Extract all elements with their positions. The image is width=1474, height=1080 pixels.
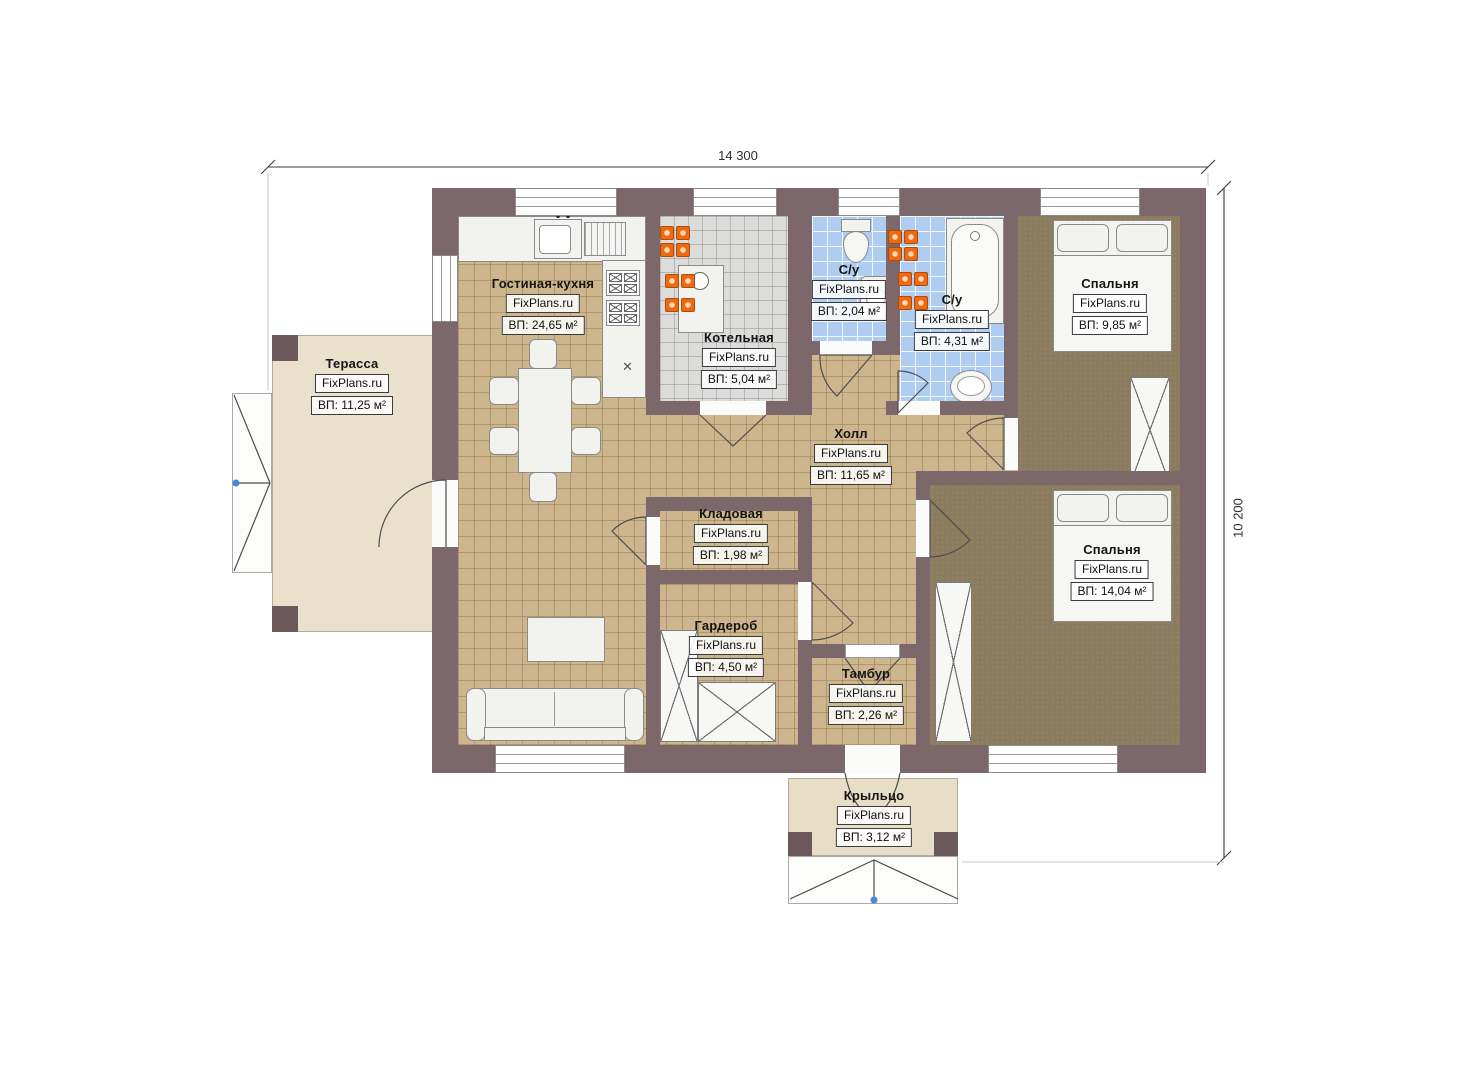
coffee-table	[527, 617, 605, 662]
dimension-height: 10 200	[1231, 498, 1246, 538]
pillow	[1057, 494, 1109, 522]
terrace-post	[272, 335, 298, 361]
room-area: ВП: 11,65 м²	[810, 466, 892, 485]
room-area: ВП: 4,50 м²	[688, 658, 764, 677]
room-label-terrace: Терасса FixPlans.ru ВП: 11,25 м²	[311, 356, 393, 415]
porch-post	[788, 832, 812, 856]
dimension-width: 14 300	[718, 148, 758, 163]
sofa-armrest	[624, 688, 644, 741]
watermark: FixPlans.ru	[315, 374, 389, 393]
radiator-icon	[660, 243, 690, 257]
door-opening	[432, 480, 458, 547]
sofa-back	[484, 727, 626, 741]
wardrobe-cabinet	[1130, 377, 1170, 483]
watermark: FixPlans.ru	[702, 348, 776, 367]
room-area: ВП: 4,31 м²	[914, 332, 990, 351]
room-label-bedroom-2: Спальня FixPlans.ru ВП: 14,04 м²	[1071, 542, 1154, 601]
chair	[529, 472, 557, 502]
room-name: Терасса	[326, 356, 379, 371]
door-opening	[646, 517, 660, 565]
room-name: Котельная	[704, 330, 774, 345]
room-area: ВП: 14,04 м²	[1071, 582, 1154, 601]
radiator-icon	[888, 230, 918, 244]
room-area: ВП: 24,65 м²	[502, 316, 585, 335]
room-label-wardrobe: Гардероб FixPlans.ru ВП: 4,50 м²	[688, 618, 764, 677]
room-area: ВП: 5,04 м²	[701, 370, 777, 389]
stove-hob-icon	[606, 300, 640, 326]
room-area: ВП: 11,25 м²	[311, 396, 393, 415]
wardrobe-cabinet	[698, 682, 776, 742]
door-opening	[820, 341, 872, 355]
room-label-living-kitchen: Гостиная-кухня FixPlans.ru ВП: 24,65 м²	[492, 276, 594, 335]
room-name: Крыльцо	[844, 788, 905, 803]
entrance-door-opening	[845, 745, 900, 773]
room-label-bath-big: С/у FixPlans.ru ВП: 4,31 м²	[914, 292, 990, 351]
door-opening	[1004, 418, 1018, 470]
room-name: Спальня	[1083, 542, 1141, 557]
room-name: Гостиная-кухня	[492, 276, 594, 291]
room-name: Тамбур	[842, 666, 890, 681]
wall	[788, 216, 812, 401]
window	[838, 188, 900, 216]
door-opening	[798, 582, 812, 640]
bathroom-sink-bowl	[957, 376, 985, 396]
watermark: FixPlans.ru	[1073, 294, 1147, 313]
chair	[489, 427, 519, 455]
radiator-icon	[888, 247, 918, 261]
terrace-post	[272, 606, 298, 632]
room-area: ВП: 9,85 м²	[1072, 316, 1148, 335]
room-label-bath-small: С/у FixPlans.ru ВП: 2,04 м²	[811, 262, 887, 321]
room-name: С/у	[942, 292, 963, 307]
watermark: FixPlans.ru	[506, 294, 580, 313]
window	[988, 745, 1118, 773]
door-opening	[700, 401, 766, 415]
watermark: FixPlans.ru	[829, 684, 903, 703]
window	[693, 188, 777, 216]
sofa-armrest	[466, 688, 486, 741]
porch-steps	[788, 856, 958, 904]
pillow	[1116, 224, 1168, 252]
door-opening	[845, 644, 900, 658]
chair	[571, 427, 601, 455]
chair	[571, 377, 601, 405]
watermark: FixPlans.ru	[689, 636, 763, 655]
room-area: ВП: 1,98 м²	[693, 546, 769, 565]
chair	[529, 339, 557, 369]
room-label-hall: Холл FixPlans.ru ВП: 11,65 м²	[810, 426, 892, 485]
watermark: FixPlans.ru	[812, 280, 886, 299]
room-label-storage: Кладовая FixPlans.ru ВП: 1,98 м²	[693, 506, 769, 565]
wall	[646, 216, 660, 401]
kitchen-drainer	[584, 222, 626, 256]
window	[432, 255, 458, 322]
pillow	[1116, 494, 1168, 522]
radiator-icon	[660, 226, 690, 240]
dining-table	[518, 368, 572, 473]
stove-hob-icon	[606, 270, 640, 296]
wall	[646, 570, 812, 584]
room-name: Холл	[834, 426, 867, 441]
watermark: FixPlans.ru	[915, 310, 989, 329]
porch-post	[934, 832, 958, 856]
room-label-porch: Крыльцо FixPlans.ru ВП: 3,12 м²	[836, 788, 912, 847]
watermark: FixPlans.ru	[814, 444, 888, 463]
floor-plan-canvas: ✕	[0, 0, 1474, 1080]
room-name: С/у	[839, 262, 860, 277]
radiator-icon	[665, 298, 695, 312]
room-name: Спальня	[1081, 276, 1139, 291]
room-name: Кладовая	[699, 506, 763, 521]
window	[515, 188, 617, 216]
chair	[489, 377, 519, 405]
sofa-seam	[554, 692, 555, 726]
wall	[646, 584, 660, 745]
door-opening	[916, 500, 930, 557]
pillow	[1057, 224, 1109, 252]
room-area: ВП: 2,26 м²	[828, 706, 904, 725]
window	[495, 745, 625, 773]
room-label-boiler: Котельная FixPlans.ru ВП: 5,04 м²	[701, 330, 777, 389]
radiator-icon	[665, 274, 695, 288]
room-area: ВП: 3,12 м²	[836, 828, 912, 847]
room-label-bedroom-1: Спальня FixPlans.ru ВП: 9,85 м²	[1072, 276, 1148, 335]
kitchen-sink-bowl	[539, 225, 571, 254]
room-label-vestibule: Тамбур FixPlans.ru ВП: 2,26 м²	[828, 666, 904, 725]
door-opening	[898, 401, 940, 415]
terrace-steps	[232, 393, 272, 573]
wall	[916, 471, 1180, 485]
watermark: FixPlans.ru	[694, 524, 768, 543]
radiator-icon	[898, 272, 928, 286]
wardrobe-cabinet	[935, 582, 972, 742]
window	[1040, 188, 1140, 216]
bathtub-drain-icon	[970, 231, 980, 241]
room-area: ВП: 2,04 м²	[811, 302, 887, 321]
counter-cross-icon: ✕	[622, 360, 633, 373]
wall	[1180, 188, 1206, 773]
watermark: FixPlans.ru	[1075, 560, 1149, 579]
watermark: FixPlans.ru	[837, 806, 911, 825]
room-name: Гардероб	[694, 618, 757, 633]
